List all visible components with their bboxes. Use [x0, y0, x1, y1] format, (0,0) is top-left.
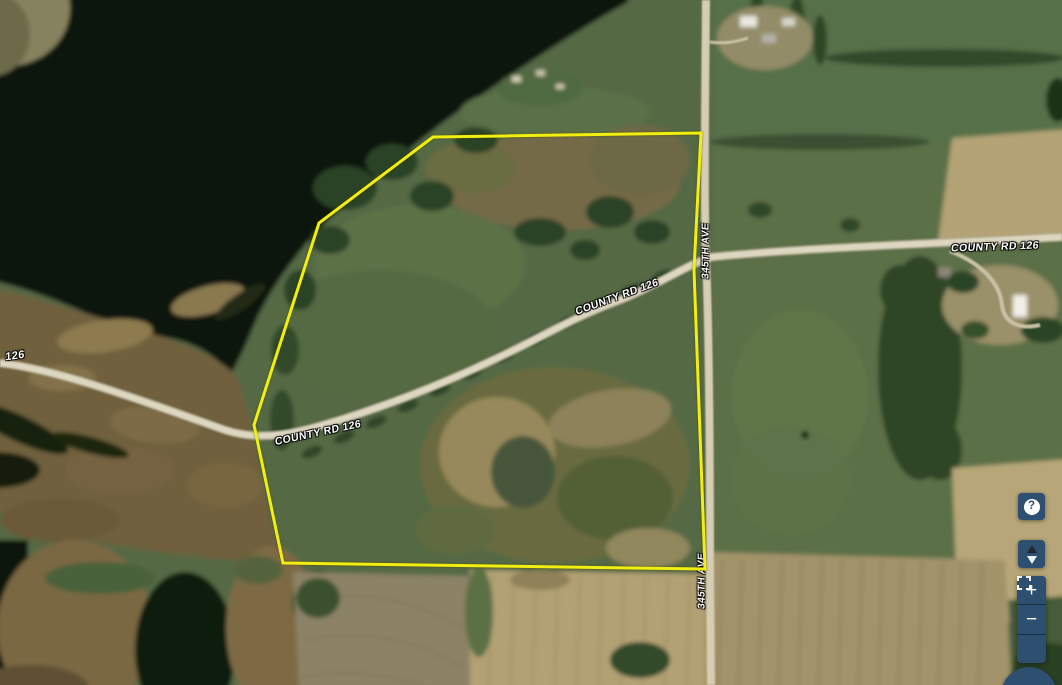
map-viewport[interactable]: 126 COUNTY RD 126 COUNTY RD 126 COUNTY R… — [0, 0, 1062, 685]
fullscreen-icon — [1017, 576, 1031, 590]
arrow-up-icon — [1027, 545, 1037, 553]
zoom-out-button[interactable]: − — [1017, 604, 1046, 633]
layer-visibility-toggle-button[interactable] — [1018, 540, 1045, 568]
fullscreen-button[interactable] — [1017, 634, 1046, 663]
help-button[interactable]: ? — [1018, 493, 1045, 520]
question-mark-icon: ? — [1024, 499, 1040, 515]
arrow-down-icon — [1027, 556, 1037, 564]
satellite-imagery — [0, 0, 1062, 685]
road-label-345th-ave-north: 345TH AVE — [701, 222, 712, 279]
road-label-345th-ave-south: 345TH AVE — [697, 552, 708, 609]
zoom-control: + − — [1017, 576, 1046, 663]
